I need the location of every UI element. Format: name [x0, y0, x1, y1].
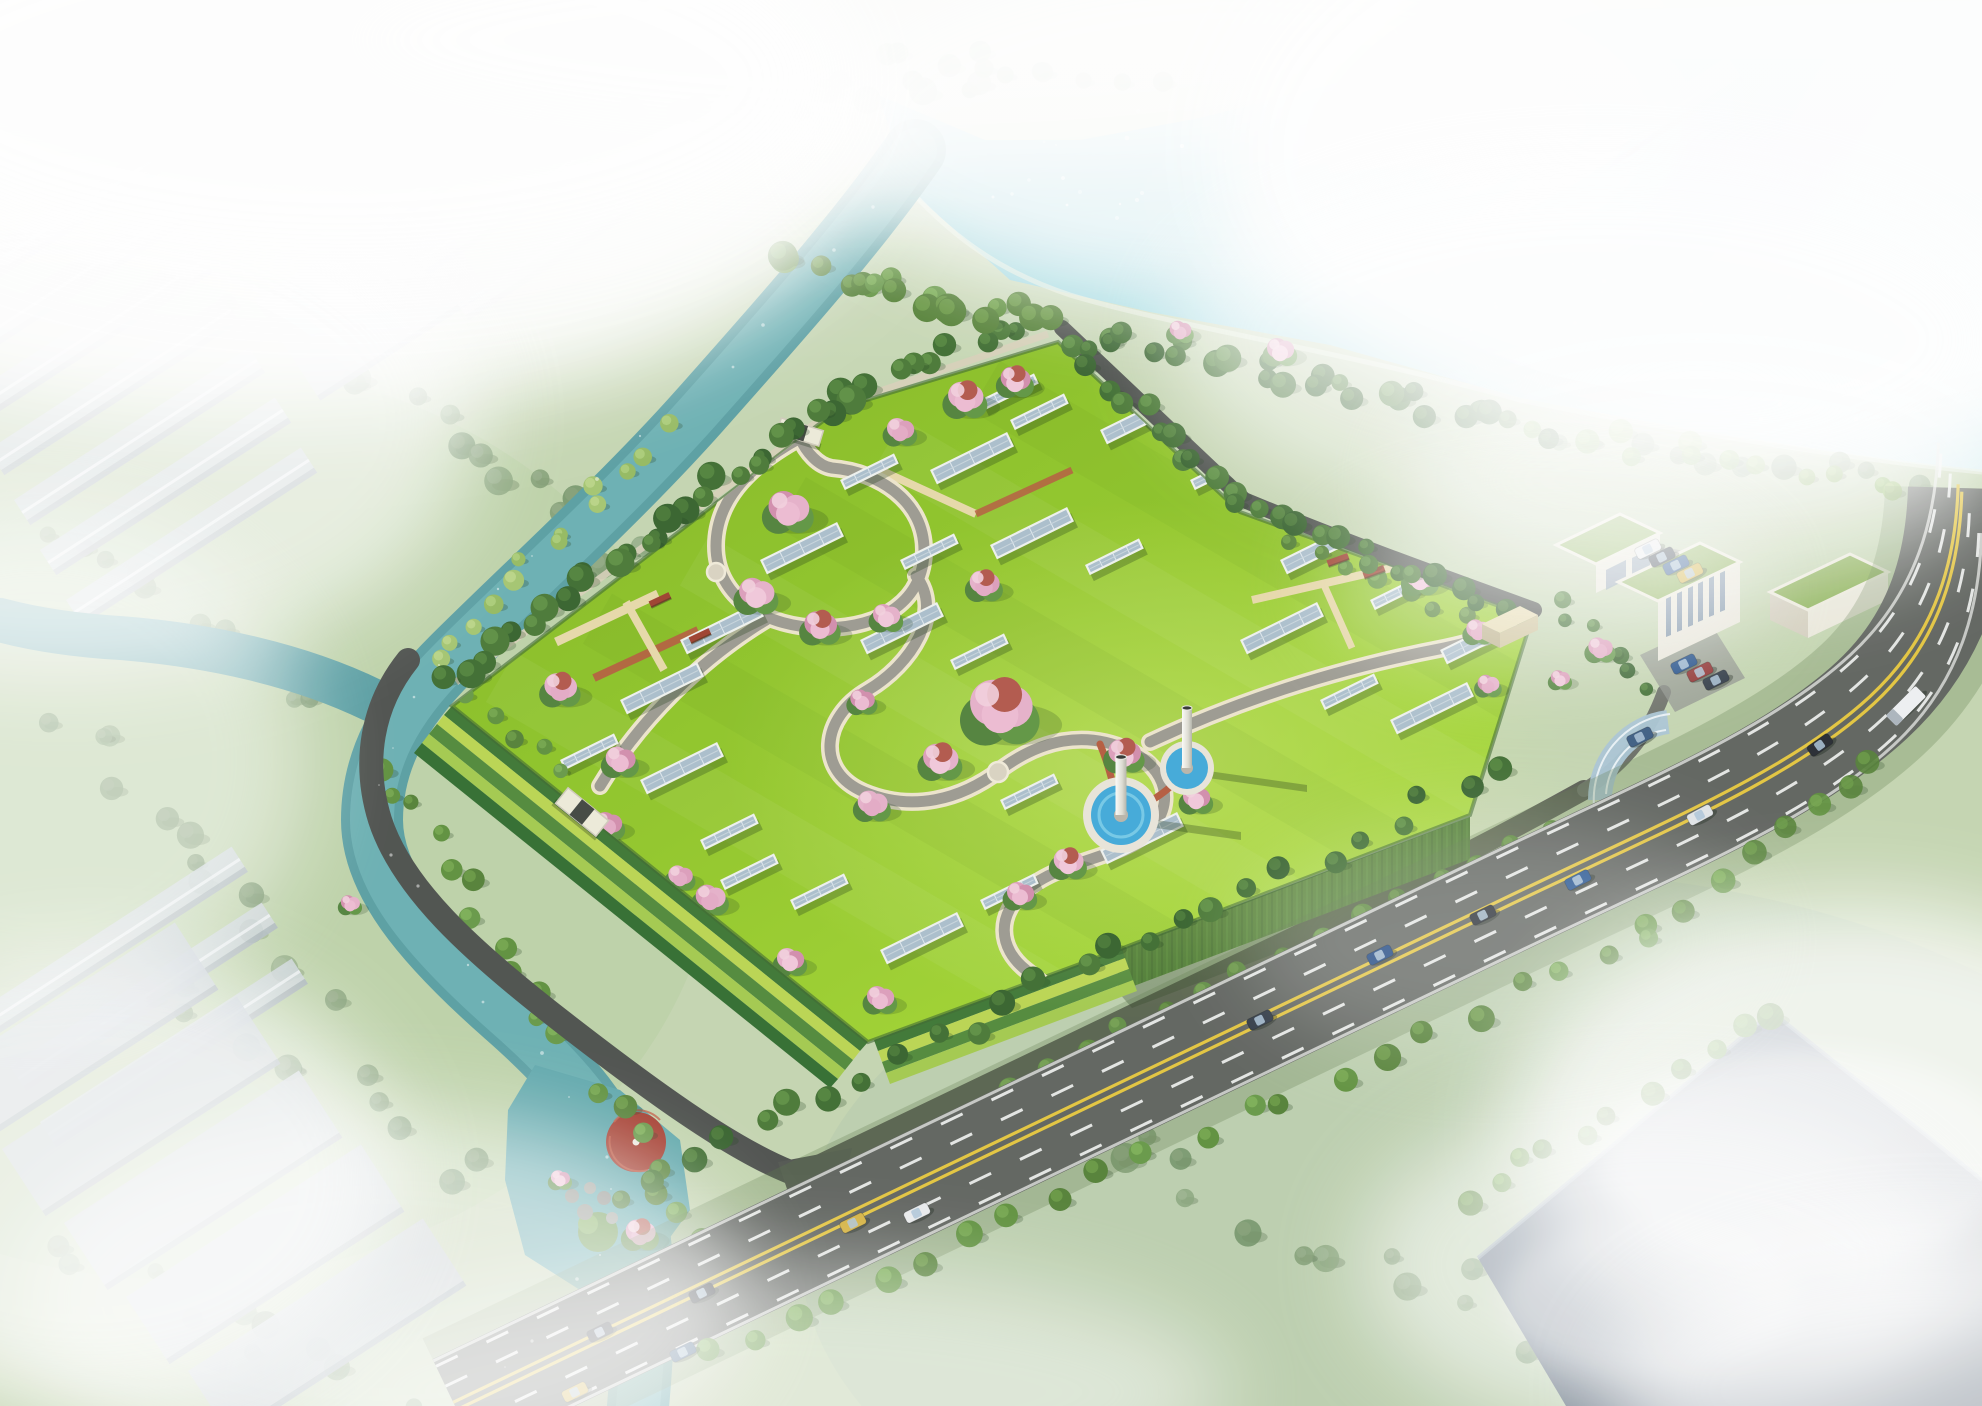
- global-haze: [0, 0, 1982, 1406]
- scene-svg: [0, 0, 1982, 1406]
- aerial-site-rendering: [0, 0, 1982, 1406]
